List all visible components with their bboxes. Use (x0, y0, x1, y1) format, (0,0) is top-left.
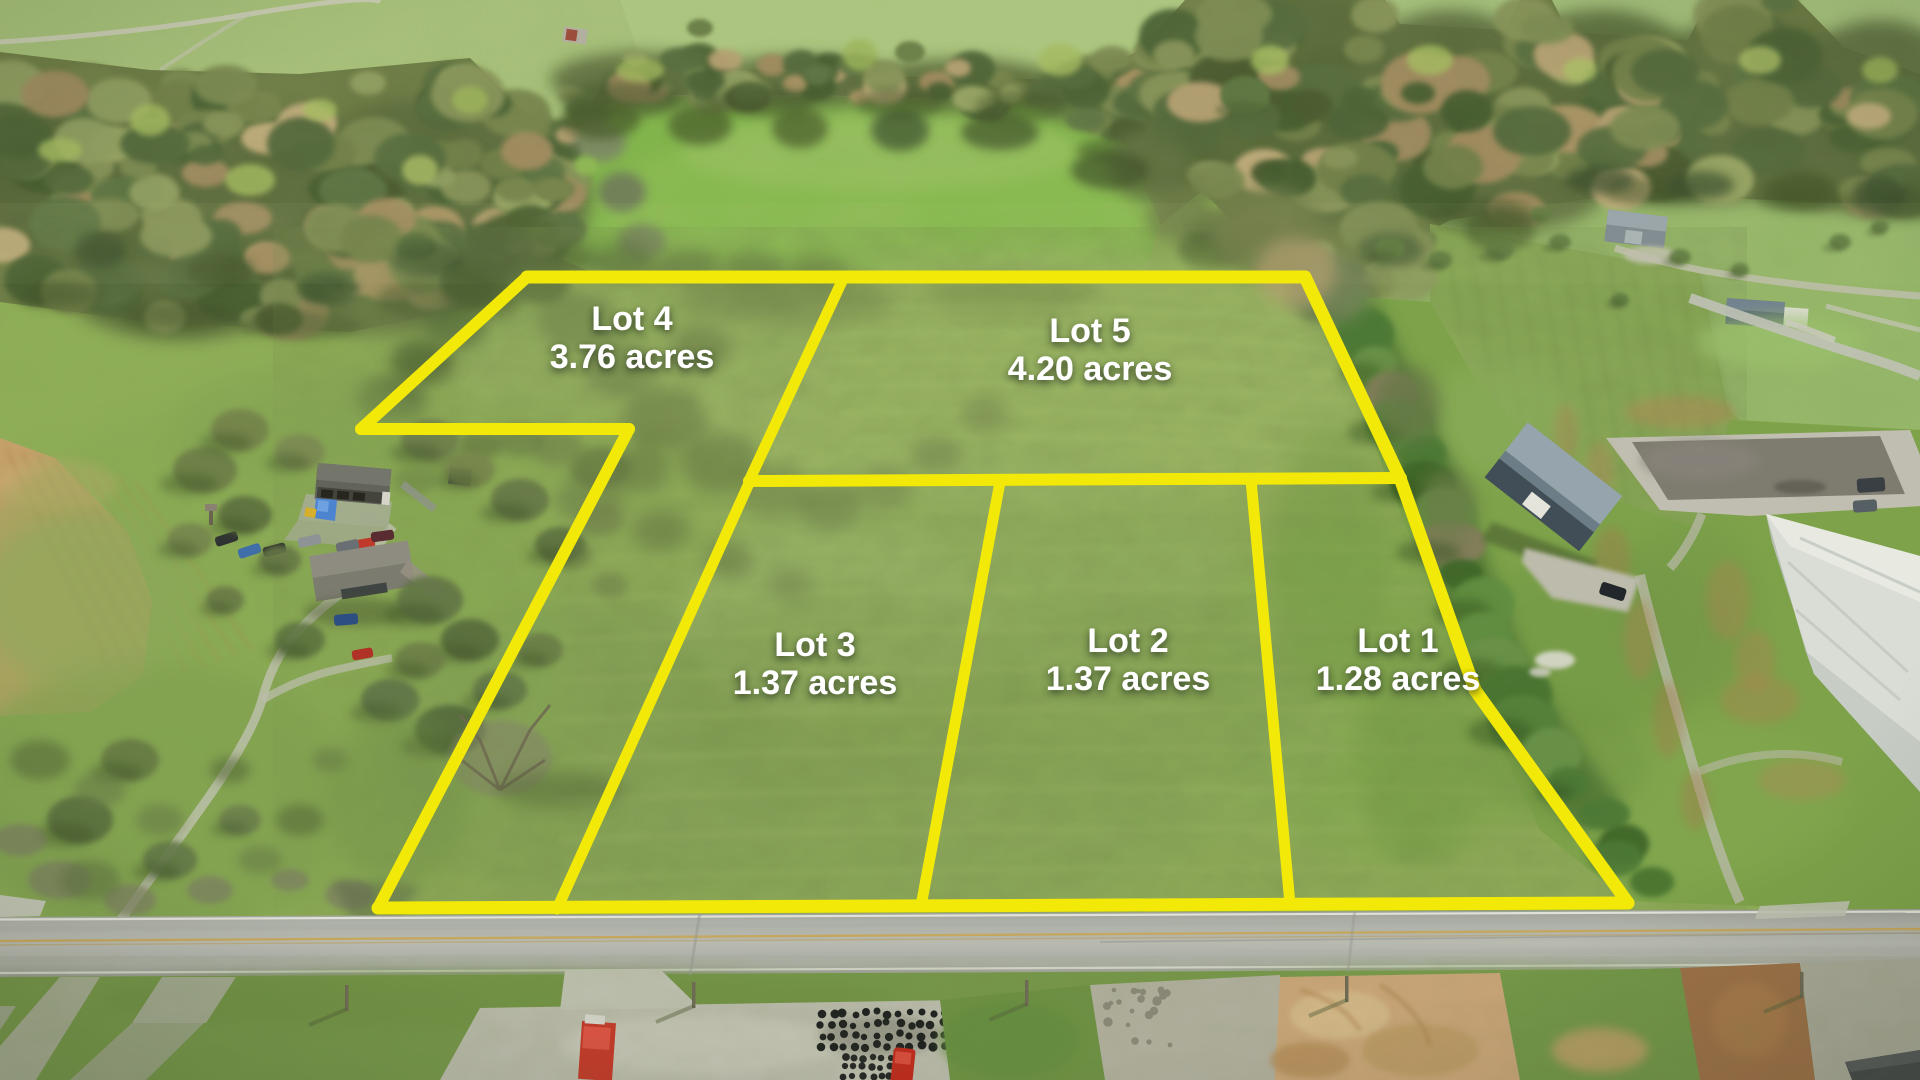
svg-text:Lot 2: Lot 2 (1087, 622, 1168, 660)
svg-text:1.37 acres: 1.37 acres (1046, 660, 1211, 698)
svg-text:Lot 1: Lot 1 (1357, 622, 1438, 660)
svg-text:1.28 acres: 1.28 acres (1316, 660, 1481, 698)
svg-text:1.37 acres: 1.37 acres (733, 664, 898, 702)
svg-text:Lot 5: Lot 5 (1049, 312, 1130, 350)
svg-text:Lot 4: Lot 4 (591, 300, 672, 338)
svg-text:Lot 3: Lot 3 (774, 626, 855, 664)
svg-text:4.20 acres: 4.20 acres (1008, 350, 1173, 388)
svg-text:3.76 acres: 3.76 acres (550, 338, 715, 376)
